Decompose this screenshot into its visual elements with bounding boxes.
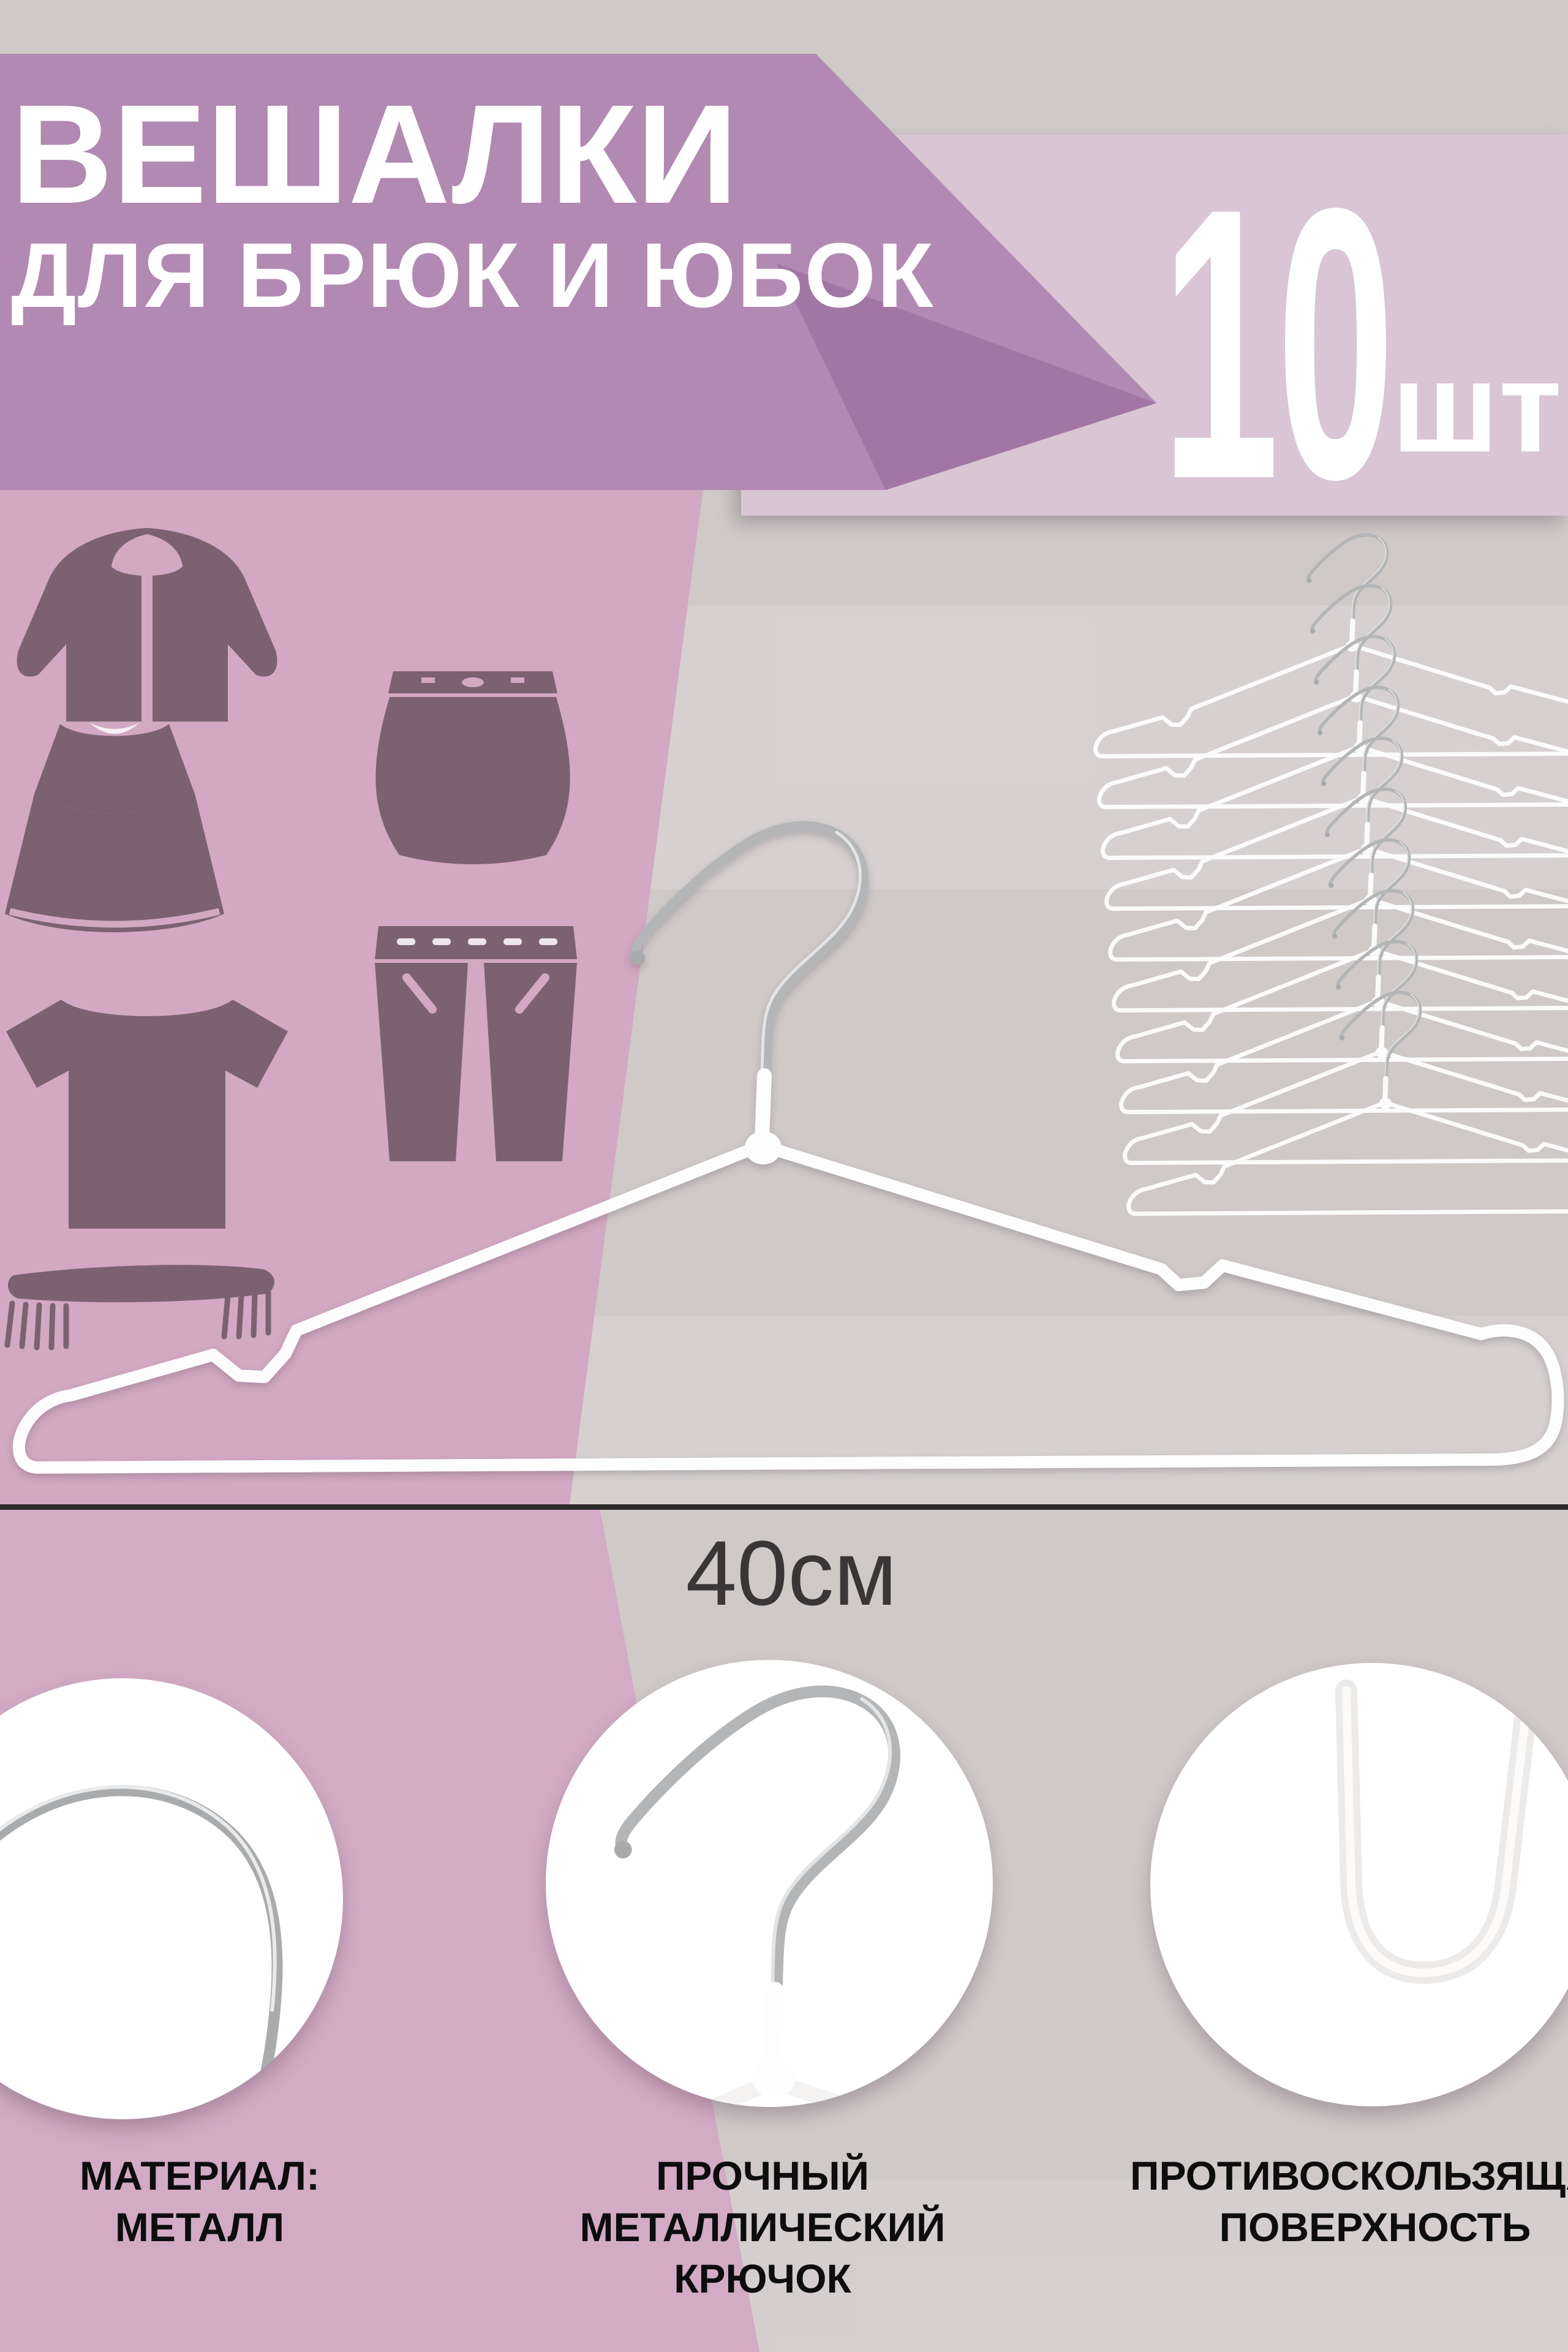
caption-material: МАТЕРИАЛ: МЕТАЛЛ [0, 2150, 445, 2253]
caption-nonslip: ПРОТИВОСКОЛЬЗЯЩАЯ ПОВЕРХНОСТЬ [1130, 2150, 1568, 2253]
caption-line: КРЮЧОК [518, 2253, 1008, 2305]
detail-circle-hook [546, 1660, 993, 2107]
caption-line: ПРОТИВОСКОЛЬЗЯЩАЯ [1130, 2150, 1568, 2202]
quantity-value: 10 [1161, 151, 1392, 537]
caption-line: МЕТАЛЛ [0, 2202, 445, 2253]
caption-hook: ПРОЧНЫЙ МЕТАЛЛИЧЕСКИЙ КРЮЧОК [518, 2150, 1008, 2304]
product-title: ВЕШАЛКИ [11, 84, 738, 225]
dimension-label: 40см [608, 1527, 975, 1619]
caption-line: ПРОЧНЫЙ [518, 2150, 1008, 2202]
detail-circle-nonslip [1150, 1663, 1568, 2106]
product-card: 10 шт ВЕШАЛКИ ДЛЯ БРЮК И ЮБОК 40см МАТЕР… [0, 0, 1568, 2352]
caption-line: МЕТАЛЛИЧЕСКИЙ [518, 2202, 1008, 2253]
quantity-unit: шт [1392, 343, 1562, 472]
product-subtitle: ДЛЯ БРЮК И ЮБОК [11, 229, 935, 321]
caption-line: МАТЕРИАЛ: [0, 2150, 445, 2202]
caption-line: ПОВЕРХНОСТЬ [1130, 2202, 1568, 2253]
dimension-line [0, 1504, 1568, 1510]
